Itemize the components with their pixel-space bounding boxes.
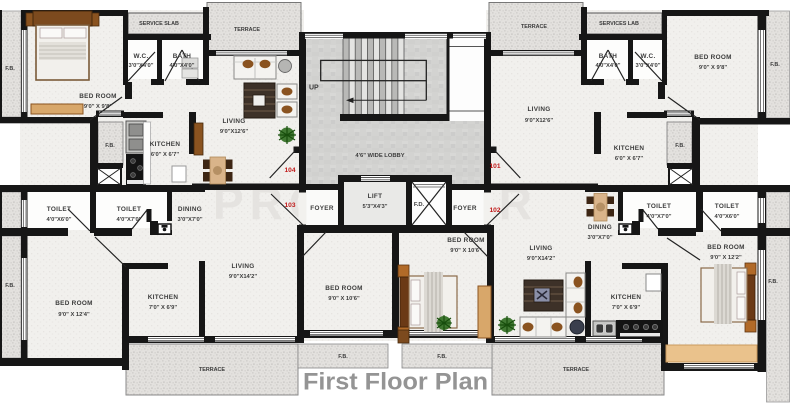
svg-text:F.B.: F.B. [5,283,15,289]
svg-text:UP: UP [309,85,319,92]
svg-text:F.B.: F.B. [675,143,685,149]
svg-text:SERVICE SLAB: SERVICE SLAB [139,21,179,27]
svg-text:4'0"X6'0": 4'0"X6'0" [46,217,71,223]
svg-text:LIVING: LIVING [529,245,552,252]
svg-text:9'0"X14'2": 9'0"X14'2" [527,256,555,262]
svg-text:TOILET: TOILET [647,203,671,210]
svg-text:102: 102 [489,207,500,214]
svg-text:LIVING: LIVING [527,106,550,113]
svg-text:9'0"X12'6": 9'0"X12'6" [525,118,553,124]
svg-text:4'0"X7'0": 4'0"X7'0" [116,217,141,223]
svg-text:TERRACE: TERRACE [521,24,547,30]
svg-text:FOYER: FOYER [453,205,477,212]
svg-text:104: 104 [284,167,295,174]
svg-text:F.B.: F.B. [768,279,778,285]
svg-text:BATH: BATH [173,53,192,60]
svg-text:7'0" X 6'9": 7'0" X 6'9" [612,305,640,311]
svg-text:W.C.: W.C. [640,53,655,60]
svg-text:3'0"X7'0'': 3'0"X7'0'' [587,235,613,241]
svg-text:9'0" X 10'6": 9'0" X 10'6" [450,248,482,254]
svg-text:First Floor Plan: First Floor Plan [303,369,488,396]
svg-text:F.B.: F.B. [338,354,348,360]
svg-text:BED ROOM: BED ROOM [55,300,93,307]
svg-text:KITCHEN: KITCHEN [150,141,181,148]
svg-text:W.C.: W.C. [133,53,148,60]
svg-text:101: 101 [489,163,500,170]
svg-text:BED ROOM: BED ROOM [447,237,485,244]
svg-text:4'0"X4'0": 4'0"X4'0" [169,63,194,69]
svg-text:9'0" X 9'8": 9'0" X 9'8" [84,104,112,110]
svg-text:KITCHEN: KITCHEN [611,294,642,301]
svg-text:F.B.: F.B. [437,354,447,360]
svg-text:BED ROOM: BED ROOM [79,93,117,100]
svg-text:3'0"X4'0": 3'0"X4'0" [128,63,153,69]
svg-text:BATH: BATH [599,53,618,60]
svg-text:4'0"X4'0": 4'0"X4'0" [595,63,620,69]
svg-text:TERRACE: TERRACE [199,367,225,373]
svg-text:TOILET: TOILET [117,206,141,213]
svg-text:LIVING: LIVING [231,263,254,270]
svg-text:LIFT: LIFT [368,193,383,200]
svg-text:KITCHEN: KITCHEN [614,145,645,152]
svg-text:TOILET: TOILET [715,203,739,210]
svg-text:4'0"X6'0": 4'0"X6'0" [714,214,739,220]
svg-text:BED ROOM: BED ROOM [707,244,745,251]
svg-text:5'3"X4'3": 5'3"X4'3" [362,204,387,210]
svg-text:BED ROOM: BED ROOM [325,285,363,292]
svg-text:9'0" X 9'8": 9'0" X 9'8" [699,65,727,71]
svg-text:TERRACE: TERRACE [234,27,260,33]
svg-text:4'6" WIDE LOBBY: 4'6" WIDE LOBBY [355,153,404,159]
svg-text:9'0" X 12'4": 9'0" X 12'4" [58,312,90,318]
svg-text:FOYER: FOYER [310,205,334,212]
svg-text:103: 103 [284,202,295,209]
svg-text:F.B.: F.B. [105,143,115,149]
svg-text:KITCHEN: KITCHEN [148,294,179,301]
svg-text:F.B.: F.B. [770,62,780,68]
svg-text:BED ROOM: BED ROOM [694,54,732,61]
svg-text:SERVICES LAB: SERVICES LAB [599,21,639,27]
svg-text:9'0" X 12'2": 9'0" X 12'2" [710,255,742,261]
svg-text:TOILET: TOILET [47,206,71,213]
svg-text:DINING: DINING [178,206,202,213]
svg-text:F.D.: F.D. [414,202,425,208]
svg-text:TERRACE: TERRACE [563,367,589,373]
svg-text:6'0" X 6'7": 6'0" X 6'7" [615,156,643,162]
svg-text:DINING: DINING [588,224,612,231]
svg-text:LIVING: LIVING [222,118,245,125]
svg-text:6'0" X 6'7": 6'0" X 6'7" [151,152,179,158]
svg-text:9'0"X12'6": 9'0"X12'6" [220,129,248,135]
svg-text:3'0"X4'0": 3'0"X4'0" [635,63,660,69]
svg-text:3'0"X7'0'': 3'0"X7'0'' [177,217,203,223]
svg-text:9'0"X14'2": 9'0"X14'2" [229,274,257,280]
svg-text:7'0" X 6'9": 7'0" X 6'9" [149,305,177,311]
svg-text:4'0"X7'0": 4'0"X7'0" [646,214,671,220]
svg-text:9'0" X 10'6": 9'0" X 10'6" [328,296,360,302]
svg-text:F.B.: F.B. [5,66,15,72]
